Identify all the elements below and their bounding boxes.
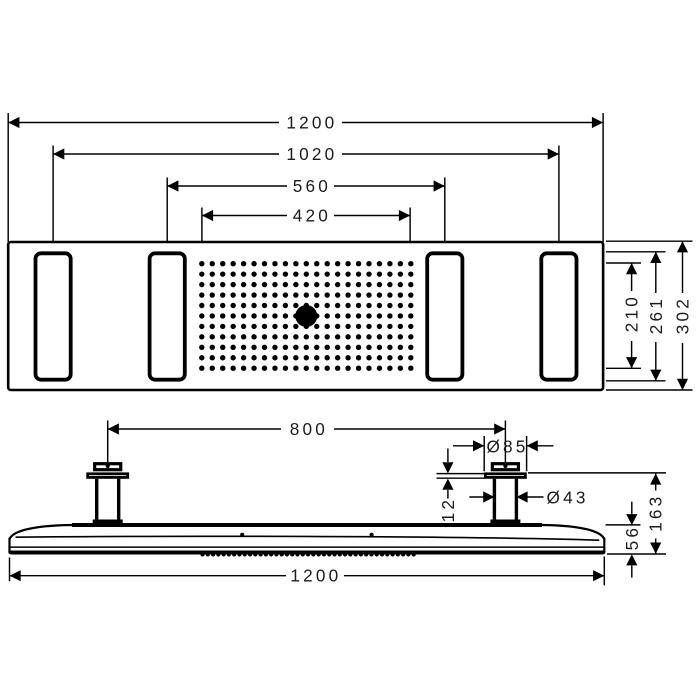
svg-text:12: 12	[438, 497, 458, 523]
svg-text:302: 302	[673, 296, 693, 334]
svg-text:210: 210	[622, 294, 642, 332]
svg-text:261: 261	[646, 296, 666, 334]
svg-text:420: 420	[293, 206, 331, 226]
svg-text:56: 56	[622, 525, 642, 551]
svg-text:1200: 1200	[290, 566, 341, 586]
svg-text:163: 163	[646, 494, 666, 532]
svg-text:1200: 1200	[286, 113, 337, 133]
svg-text:1020: 1020	[286, 144, 337, 164]
svg-text:800: 800	[290, 419, 328, 439]
svg-text:Ø85: Ø85	[486, 436, 528, 456]
svg-text:Ø43: Ø43	[547, 487, 589, 507]
svg-text:560: 560	[293, 176, 331, 196]
